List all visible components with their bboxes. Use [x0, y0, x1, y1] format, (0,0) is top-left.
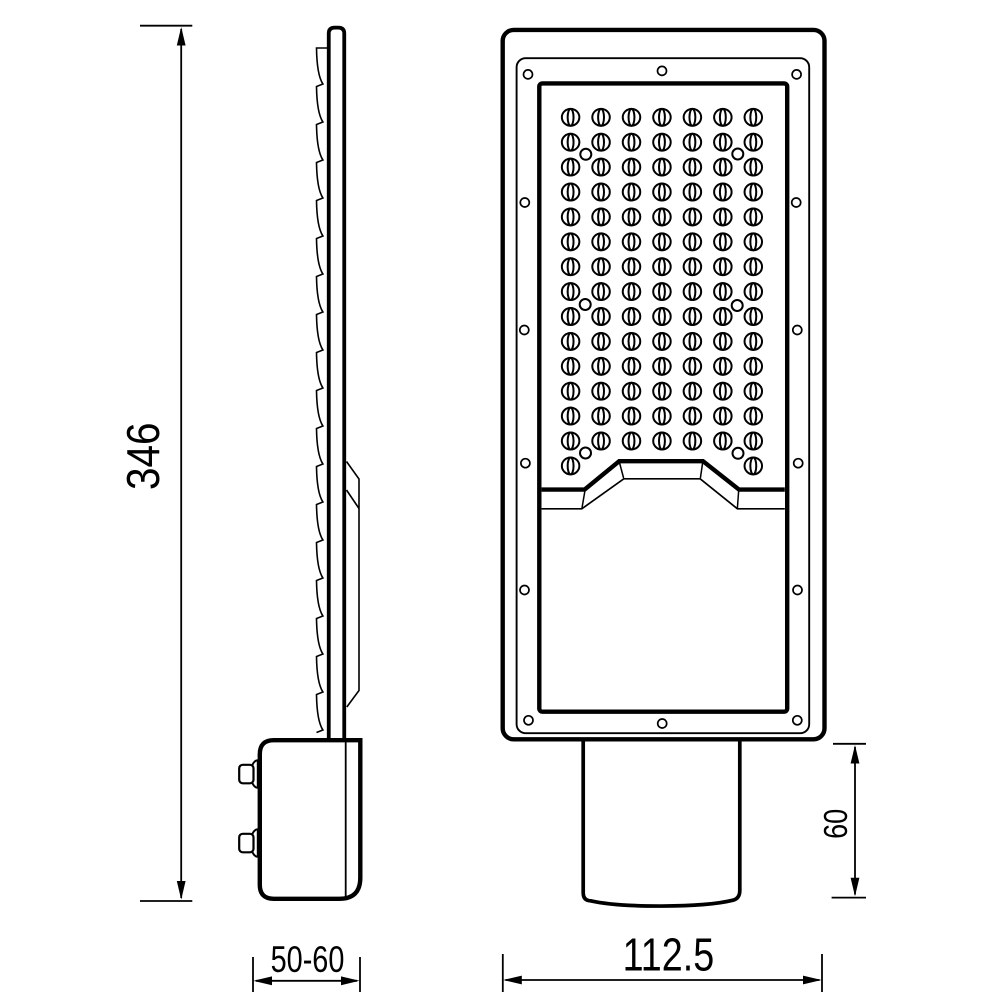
svg-text:50-60: 50-60	[271, 939, 345, 980]
svg-text:112.5: 112.5	[623, 929, 715, 980]
svg-text:346: 346	[118, 423, 169, 491]
svg-text:60: 60	[819, 809, 855, 839]
